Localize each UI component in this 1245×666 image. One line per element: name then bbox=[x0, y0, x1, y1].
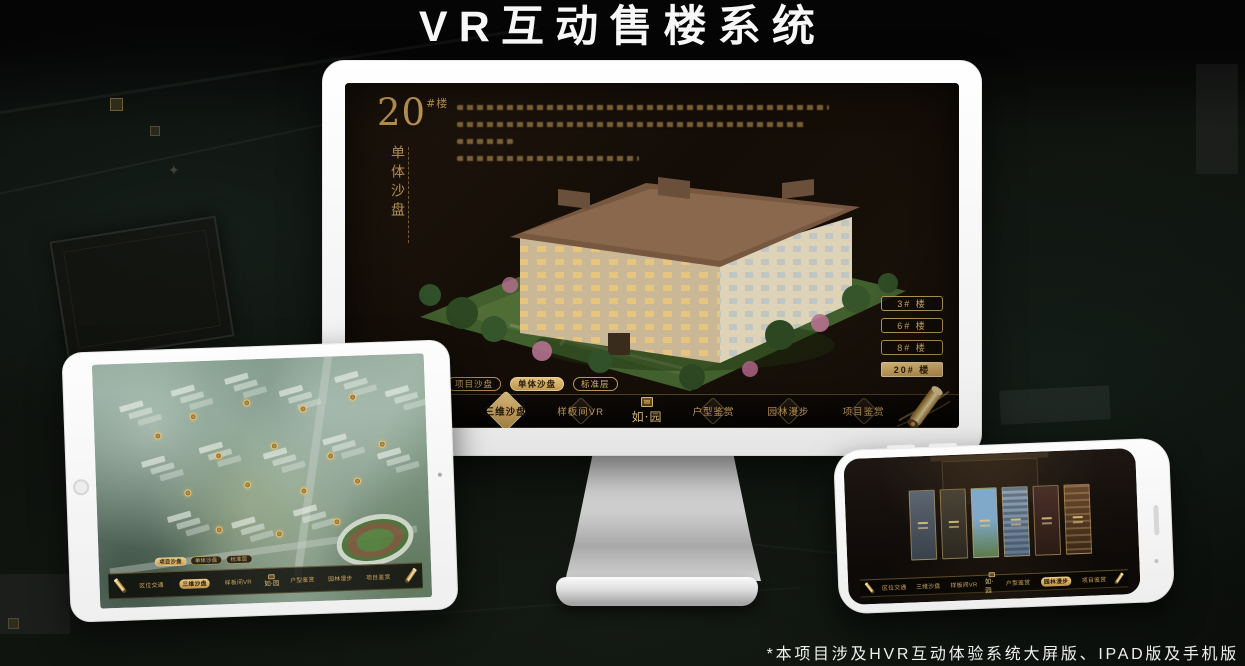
phone-nav-unit-plans[interactable]: 户型鉴赏 bbox=[1005, 578, 1030, 587]
phone-screen: 区位交通 三维沙盘 样板间VR 如·园 户型鉴赏 园林漫步 项目鉴赏 bbox=[843, 448, 1140, 605]
monitor-stand-neck bbox=[565, 455, 761, 581]
tablet-nav-unit-plans[interactable]: 户型鉴赏 bbox=[290, 575, 315, 584]
background-logo-chip bbox=[150, 126, 160, 136]
tablet-subtab-standard-floor[interactable]: 标准层 bbox=[226, 555, 252, 564]
panorama-card[interactable] bbox=[1002, 486, 1031, 557]
seal-icon bbox=[268, 574, 275, 579]
phone-nav-location-traffic[interactable]: 区位交通 bbox=[882, 583, 907, 592]
subtab-project-sandbox[interactable]: 项目沙盘 bbox=[447, 377, 501, 391]
page-title: VR互动售楼系统 bbox=[0, 0, 1245, 56]
phone-nav-garden-walk[interactable]: 园林漫步 bbox=[1041, 576, 1072, 587]
floor-heading-suffix: #楼 bbox=[426, 97, 448, 110]
background-compass-icon: ✦ bbox=[168, 162, 180, 179]
panorama-card[interactable] bbox=[909, 490, 938, 561]
background-plaque bbox=[49, 216, 234, 363]
promo-canvas: ✦ 20#楼 单体沙盘 bbox=[0, 0, 1245, 666]
phone-brand-logo[interactable]: 如·园 bbox=[984, 572, 999, 595]
background-logo-chip bbox=[110, 98, 123, 111]
phone-nav-showroom-vr[interactable]: 样板间VR bbox=[951, 580, 978, 589]
floor-button-3[interactable]: 3# 楼 bbox=[881, 296, 943, 311]
panorama-card[interactable] bbox=[1032, 485, 1061, 556]
footnote-text: *本项目涉及HVR互动体验系统大屏版、IPAD版及手机版 bbox=[767, 640, 1239, 664]
brand-logo[interactable]: 如·园 bbox=[618, 397, 676, 425]
subtab-single-sandbox[interactable]: 单体沙盘 bbox=[510, 377, 564, 391]
nav-item-3d-sandbox[interactable]: 三维沙盘 bbox=[468, 394, 543, 428]
phone-device: 区位交通 三维沙盘 样板间VR 如·园 户型鉴赏 园林漫步 项目鉴赏 bbox=[833, 438, 1175, 615]
monitor-stand-base bbox=[556, 577, 758, 606]
tablet-nav-3d-sandbox[interactable]: 三维沙盘 bbox=[179, 578, 210, 588]
tablet-nav-location-traffic[interactable]: 区位交通 bbox=[140, 580, 165, 589]
panorama-card[interactable] bbox=[940, 488, 969, 559]
project-description-text bbox=[457, 105, 829, 173]
panorama-gallery bbox=[909, 484, 1093, 561]
phone-nav-project-gallery[interactable]: 项目鉴赏 bbox=[1081, 575, 1106, 584]
floor-button-6[interactable]: 6# 楼 bbox=[881, 318, 943, 333]
tablet-subtab-single-sandbox[interactable]: 单体沙盘 bbox=[190, 556, 222, 566]
sandbox-subtabs: 项目沙盘 单体沙盘 标准层 bbox=[447, 377, 618, 391]
floor-button-20[interactable]: 20# 楼 bbox=[881, 362, 943, 377]
floor-heading-number: 20 bbox=[377, 91, 426, 134]
floor-heading: 20#楼 bbox=[377, 91, 448, 134]
tablet-screen: 项目沙盘 单体沙盘 标准层 区位交通 三维沙盘 样板间VR 如·园 户型鉴赏 园… bbox=[92, 353, 432, 608]
nav-item-showroom-vr[interactable]: 样板间VR bbox=[543, 394, 618, 428]
tablet-nav-project-gallery[interactable]: 项目鉴赏 bbox=[367, 573, 392, 582]
scroll-icon[interactable] bbox=[1110, 569, 1126, 588]
panorama-card[interactable] bbox=[971, 487, 1000, 558]
nav-item-unit-plans[interactable]: 户型鉴赏 bbox=[676, 394, 751, 428]
tablet-subtabs: 项目沙盘 单体沙盘 标准层 bbox=[155, 555, 253, 567]
subtab-standard-floor[interactable]: 标准层 bbox=[573, 377, 618, 391]
brand-logo-text: 如·园 bbox=[632, 408, 663, 425]
tablet-brand-logo[interactable]: 如·园 bbox=[264, 574, 279, 588]
floor-button-8[interactable]: 8# 楼 bbox=[881, 340, 943, 355]
floor-selector: 3# 楼 6# 楼 8# 楼 20# 楼 bbox=[881, 294, 943, 382]
tablet-nav-showroom-vr[interactable]: 样板间VR bbox=[225, 577, 252, 586]
background-building bbox=[1196, 64, 1238, 174]
tablet-subtab-project-sandbox[interactable]: 项目沙盘 bbox=[155, 557, 187, 567]
panorama-card[interactable] bbox=[1063, 484, 1092, 555]
nav-item-garden-walk[interactable]: 园林漫步 bbox=[751, 394, 826, 428]
scroll-icon[interactable] bbox=[862, 579, 878, 598]
tablet-nav-garden-walk[interactable]: 园林漫步 bbox=[328, 574, 353, 583]
nav-item-project-gallery[interactable]: 项目鉴赏 bbox=[826, 394, 901, 428]
background-building bbox=[0, 574, 70, 634]
scroll-menu-toggle[interactable] bbox=[901, 394, 955, 428]
scroll-icon bbox=[895, 381, 953, 428]
phone-nav-3d-sandbox[interactable]: 三维沙盘 bbox=[916, 582, 941, 591]
tablet-device: 项目沙盘 单体沙盘 标准层 区位交通 三维沙盘 样板间VR 如·园 户型鉴赏 园… bbox=[61, 339, 458, 622]
scroll-icon[interactable] bbox=[110, 575, 131, 598]
background-building bbox=[999, 385, 1111, 425]
phone-navbar: 区位交通 三维沙盘 样板间VR 如·园 户型鉴赏 园林漫步 项目鉴赏 bbox=[860, 569, 1128, 597]
scroll-icon[interactable] bbox=[400, 564, 421, 587]
building-render bbox=[390, 165, 910, 395]
seal-icon bbox=[641, 397, 653, 407]
